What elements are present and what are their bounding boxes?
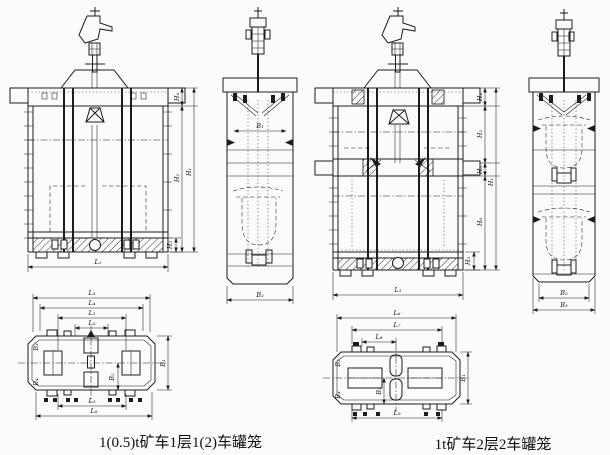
dim-label: B₂ (255, 291, 264, 299)
dim-label: L₃ (88, 289, 96, 297)
dim-label: H₄ (173, 92, 181, 102)
dim-label: B₂ (559, 289, 568, 297)
dim-label: H₄ (476, 92, 484, 102)
dim-label: B₁ (255, 122, 263, 130)
dim-label: L₁ (88, 309, 96, 317)
dim-label: B₃ (334, 359, 342, 368)
dim-label: H₁ (487, 178, 495, 187)
dim-label: L₆ (90, 407, 98, 415)
mine-cage-drawing: L₁ H₃ H₄ H₂ H₁ B₁ B₂ L₃ L₄ L₁ (0, 0, 610, 455)
right-plan-view: L₆ L₇ L₈ L₉ B₁ B₂ B₃ B₄ (323, 309, 472, 422)
dim-label: H₂ (476, 129, 484, 139)
right-front-view: L₁ H₃ H₄ H₂ H₅ H₆ H₁ (315, 7, 500, 300)
dim-label: L₄ (88, 299, 96, 307)
dim-label: B₄ (32, 378, 40, 387)
left-figure-caption: 1(0.5)t矿车1层1(2)车罐笼 (68, 431, 293, 452)
dim-label: H₃ (464, 256, 472, 266)
dim-label: L₅ (88, 397, 96, 405)
right-figure-caption: 1t矿车2层2车罐笼 (408, 433, 578, 454)
left-plan-view: L₃ L₄ L₁ L₂ L₅ L₆ B₁ B₂ B₃ B₄ (18, 289, 172, 420)
hook-centerline-icon (90, 7, 100, 16)
dim-label: L₁ (394, 286, 402, 294)
dim-label: L₂ (88, 319, 96, 327)
dim-label: L₉ (393, 409, 401, 417)
left-front-view: L₁ H₃ H₄ H₂ H₁ (10, 7, 198, 272)
dim-label: B₂ (375, 387, 383, 396)
dim-label: L₆ (393, 309, 401, 317)
dim-label: B₃ (559, 301, 568, 309)
dim-label: L₈ (375, 333, 383, 341)
dim-label: H₆ (476, 217, 484, 227)
right-side-view: B₂ B₃ (529, 9, 599, 314)
dim-label: H₃ (166, 240, 174, 250)
hook-claw-icon (79, 16, 112, 43)
dim-label: H₁ (185, 168, 193, 177)
dim-label: L₁ (94, 258, 102, 266)
dim-label: H₅ (476, 165, 484, 175)
dim-label: H₂ (173, 173, 181, 183)
dim-label: B₂ (108, 373, 116, 382)
left-side-view: B₁ B₂ (223, 7, 297, 304)
dim-label: B₄ (334, 391, 342, 400)
technical-drawing-sheet: L₁ H₃ H₄ H₂ H₁ B₁ B₂ L₃ L₄ L₁ (0, 0, 610, 455)
hook-claw-icon (382, 16, 415, 43)
dim-label: B₁ (459, 374, 467, 382)
dim-label: B₃ (32, 343, 40, 352)
dim-label: L₇ (393, 321, 401, 329)
dim-label: B₁ (159, 359, 167, 367)
